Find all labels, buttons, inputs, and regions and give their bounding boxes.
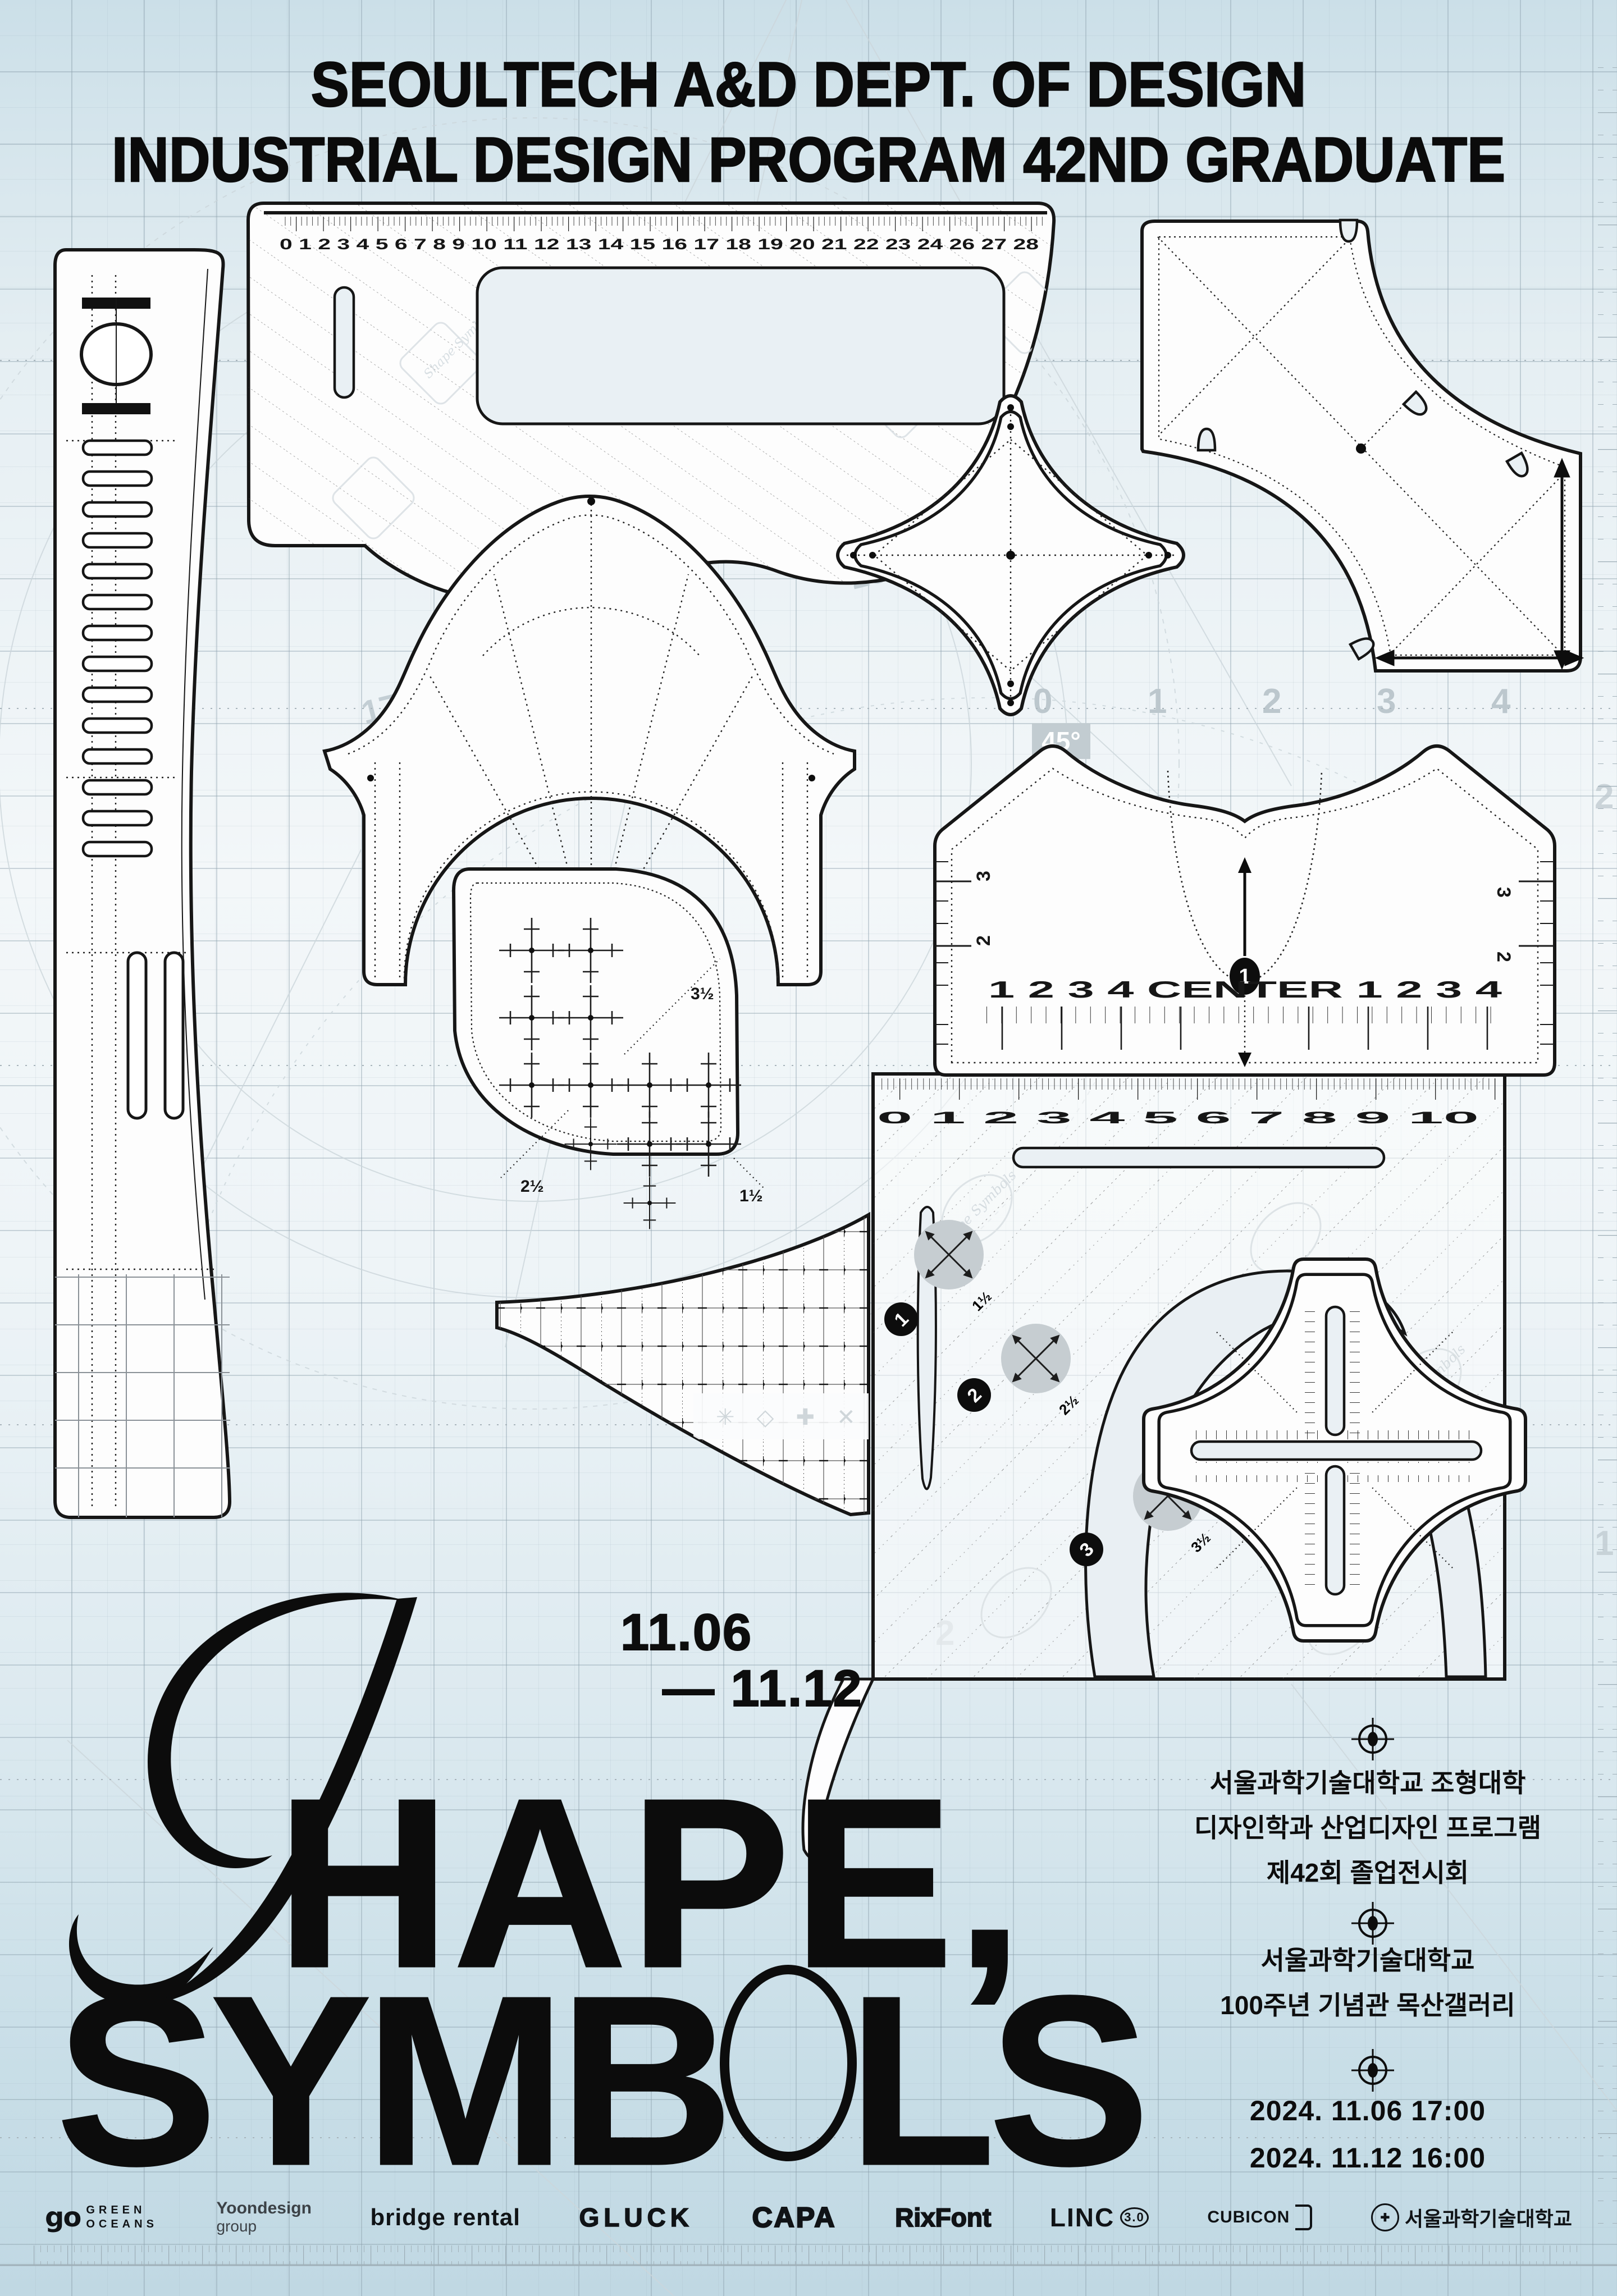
scale-numbers: 0 1 2 3 4 5 6 7 8 9 10 11 12 13 14 15 16…	[280, 236, 1039, 253]
sponsor-row: go GREEN OCEANS Yoondesign group bridge …	[45, 2193, 1572, 2242]
logo-gluck: GLUCK	[579, 2202, 693, 2233]
header-line1: SEOULTECH A&D DEPT. OF DESIGN	[73, 47, 1545, 122]
open-datetime: 2024. 11.06 17:00	[1115, 2087, 1617, 2134]
registration-mark-1	[1350, 1717, 1395, 1762]
slot-cutout	[335, 287, 354, 397]
logo-capa: CAPA	[752, 2201, 837, 2234]
bottom-scale-ticks	[986, 1007, 1503, 1023]
poster: 300 280 270 250 210 200 170 150 0 1 2 3 …	[0, 0, 1617, 2296]
logo-seoultech: ✚ 서울과학기술대학교	[1371, 2203, 1572, 2232]
svg-text:2: 2	[973, 935, 994, 946]
logo-bridge-rental: bridge rental	[371, 2204, 520, 2231]
cubicon-logo-icon	[1295, 2204, 1312, 2230]
info-show: 제42회 졸업전시회	[1115, 1850, 1617, 1895]
svg-text:3½: 3½	[691, 985, 714, 1003]
right-edge-ruler	[1598, 67, 1617, 2240]
logo-yoondesign: Yoondesign group	[216, 2199, 311, 2235]
date-start: 11.06	[620, 1603, 752, 1662]
bottom-edge-ruler	[0, 2245, 1617, 2265]
info-block-1: 서울과학기술대학교 조형대학 디자인학과 산업디자인 프로그램 제42회 졸업전…	[1115, 1760, 1617, 1895]
template-left-curve-ruler	[49, 244, 240, 1524]
svg-text:3: 3	[973, 871, 994, 881]
registration-mark-3	[1350, 2048, 1395, 2093]
template-grid-square: 3½ 2½ 1½	[428, 852, 765, 1172]
title-line2-post: LS	[848, 1960, 1143, 2202]
title-letter-o-outline	[720, 1965, 857, 2161]
info-block-2: 서울과학기술대학교 100주년 기념관 목산갤러리	[1115, 1938, 1617, 2028]
template-tshirt-ruler: 1 3 2 3 2 1 2 3 4 CENTER 1 2 3 4	[912, 727, 1575, 1086]
svg-text:3: 3	[1493, 887, 1514, 898]
scale-numbers: 0 1 2 3 4 5 6 7 8 9 10	[877, 1109, 1479, 1127]
info-program: 디자인학과 산업디자인 프로그램	[1115, 1805, 1617, 1850]
svg-text:2½: 2½	[520, 1177, 544, 1196]
template-bowtie	[1107, 198, 1590, 680]
template-cross-star	[1135, 1251, 1534, 1649]
svg-text:2: 2	[1262, 682, 1281, 721]
grid-square-outline	[454, 869, 738, 1154]
venue-line1: 서울과학기술대학교	[1115, 1938, 1617, 1983]
info-school: 서울과학기술대학교 조형대학	[1115, 1760, 1617, 1805]
logo-rixfont: RixFont	[895, 2202, 991, 2233]
title-line2: SYMBLS	[56, 1960, 1143, 2202]
cross-slots	[1191, 1307, 1481, 1594]
green-oceans-icon: go	[45, 2202, 80, 2233]
svg-text:3: 3	[1377, 682, 1396, 721]
logo-linc30: LINC3.0	[1050, 2202, 1149, 2233]
info-block-3: 2024. 11.06 17:00 2024. 11.12 16:00	[1115, 2087, 1617, 2181]
logo-green-oceans: go GREEN OCEANS	[45, 2202, 158, 2233]
bottom-scale-numbers: 1 2 3 4 CENTER 1 2 3 4	[988, 976, 1502, 1003]
svg-text:1½: 1½	[739, 1187, 763, 1205]
mesh-grid-fill	[497, 1213, 869, 1519]
logo-cubicon: CUBICON	[1207, 2204, 1312, 2230]
linc-30-icon: 3.0	[1120, 2207, 1149, 2228]
svg-text:2: 2	[1493, 952, 1514, 962]
title-line2-pre: SYMB	[56, 1960, 727, 2202]
date-end: — 11.12	[663, 1659, 863, 1718]
venue-line2: 100주년 기념관 목산갤러리	[1115, 1983, 1617, 2028]
template-mesh-wedge: ✳ ◇ ✚ ✕ ✦	[480, 1213, 884, 1519]
svg-text:4: 4	[1491, 682, 1511, 721]
close-datetime: 2024. 11.12 16:00	[1115, 2134, 1617, 2181]
university-seal-icon: ✚	[1371, 2203, 1399, 2231]
ornament-glyphs: ✳ ◇ ✚ ✕ ✦	[716, 1405, 904, 1430]
